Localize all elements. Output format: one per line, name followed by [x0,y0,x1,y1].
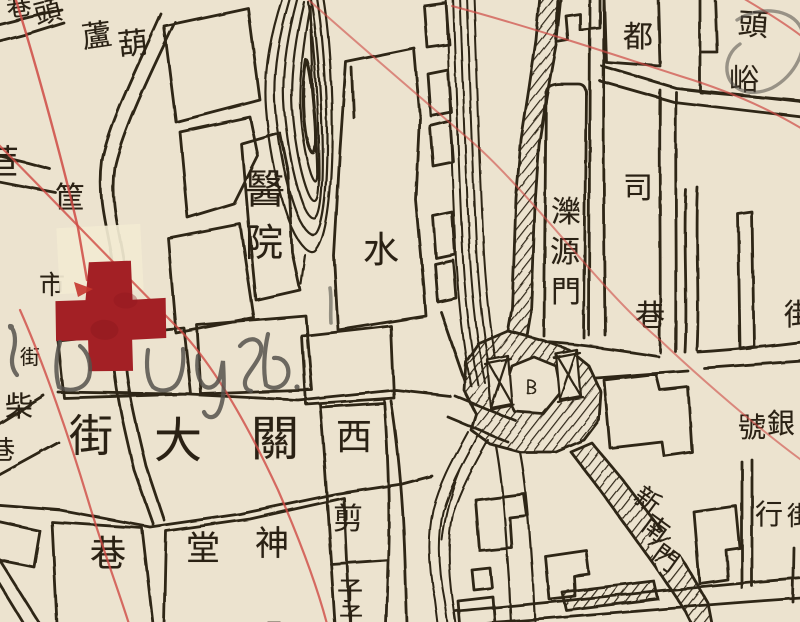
historical-city-map: 巷頭蘆葫苣筐市街柴巷街大關巷堂神醫院水西剪子濼源門都司巷頭峪街號銀行街新南門子 [0,0,800,622]
pencil-dash [330,288,331,323]
red-route-e [736,0,800,38]
pencil-circle [727,11,800,92]
map-annotation-layer [0,0,800,622]
red-route-d [452,6,800,130]
